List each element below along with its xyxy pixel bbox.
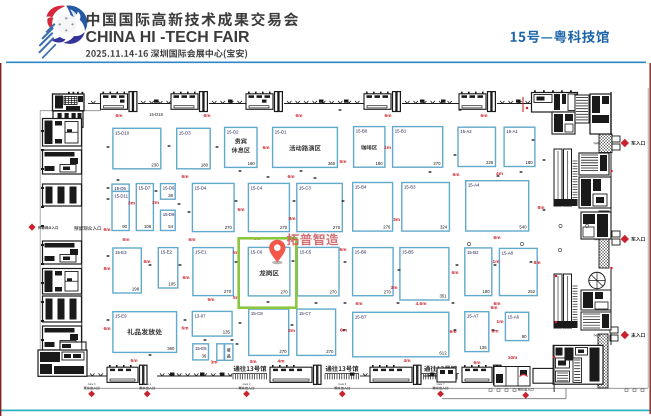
- svg-text:15-E1: 15-E1: [195, 250, 207, 255]
- svg-text:15-B7: 15-B7: [355, 314, 367, 319]
- svg-text:3m: 3m: [288, 328, 295, 334]
- svg-text:270: 270: [225, 225, 233, 230]
- svg-text:15-E9: 15-E9: [115, 314, 127, 319]
- svg-text:15-D18: 15-D18: [149, 112, 163, 117]
- svg-text:180: 180: [482, 289, 490, 294]
- svg-text:6m: 6m: [491, 305, 498, 311]
- svg-text:15-D7: 15-D7: [139, 186, 151, 191]
- svg-text:6m: 6m: [263, 145, 270, 151]
- svg-text:6m: 6m: [131, 358, 138, 364]
- svg-text:6m: 6m: [340, 159, 347, 165]
- svg-text:270: 270: [281, 290, 289, 295]
- svg-text:54: 54: [168, 224, 173, 229]
- svg-text:105: 105: [168, 282, 176, 287]
- svg-text:3m: 3m: [128, 201, 135, 207]
- svg-text:15-C7: 15-C7: [299, 311, 311, 316]
- svg-text:15-E2: 15-E2: [161, 250, 173, 255]
- svg-text:324: 324: [440, 225, 448, 230]
- svg-text:15-E5: 15-E5: [195, 346, 207, 351]
- svg-text:6m: 6m: [296, 113, 303, 119]
- svg-text:612: 612: [439, 350, 447, 355]
- svg-text:Gate 0: Gate 0: [88, 382, 96, 386]
- svg-text:15-D9: 15-D9: [163, 212, 175, 217]
- svg-text:8m: 8m: [534, 260, 541, 266]
- svg-text:15-C8: 15-C8: [251, 311, 263, 316]
- svg-text:6m: 6m: [481, 113, 488, 119]
- svg-text:15-C6: 15-C6: [251, 249, 263, 254]
- svg-text:Gate 7: Gate 7: [437, 382, 445, 386]
- svg-text:270: 270: [224, 289, 232, 294]
- svg-text:15-D11: 15-D11: [114, 193, 128, 198]
- svg-text:Gate 1: Gate 1: [143, 382, 151, 386]
- svg-text:360: 360: [167, 346, 175, 351]
- svg-text:6m: 6m: [182, 174, 189, 180]
- svg-text:15-B3: 15-B3: [404, 185, 416, 190]
- svg-text:15-B6: 15-B6: [355, 250, 367, 255]
- svg-text:36: 36: [202, 354, 207, 359]
- svg-text:15-E3: 15-E3: [115, 250, 127, 255]
- svg-text:15-B1: 15-B1: [395, 129, 407, 134]
- svg-text:160: 160: [248, 161, 256, 166]
- svg-text:6m: 6m: [104, 326, 111, 332]
- svg-text:1m: 1m: [493, 259, 500, 265]
- svg-text:8m: 8m: [289, 216, 296, 222]
- svg-text:135: 135: [479, 345, 487, 350]
- svg-text:15-A1: 15-A1: [506, 129, 518, 134]
- svg-text:6m: 6m: [385, 113, 392, 119]
- svg-text:5m: 5m: [208, 297, 215, 303]
- svg-text:1m: 1m: [497, 319, 504, 325]
- svg-text:90: 90: [122, 224, 127, 229]
- svg-text:4.5m: 4.5m: [416, 301, 427, 307]
- svg-text:3m: 3m: [211, 360, 218, 366]
- svg-text:270: 270: [326, 349, 334, 354]
- svg-text:6m: 6m: [183, 275, 190, 281]
- svg-text:6m: 6m: [453, 172, 460, 178]
- svg-text:225: 225: [486, 160, 494, 165]
- svg-text:6m: 6m: [189, 237, 196, 243]
- svg-text:8m: 8m: [104, 266, 111, 272]
- svg-text:3m: 3m: [152, 200, 159, 206]
- svg-text:6m: 6m: [452, 270, 459, 276]
- svg-text:6m: 6m: [340, 247, 347, 253]
- svg-text:15-B0: 15-B0: [356, 129, 368, 134]
- svg-text:15-D1: 15-D1: [275, 129, 287, 134]
- svg-text:6m: 6m: [123, 237, 130, 243]
- svg-text:1m: 1m: [384, 145, 391, 151]
- svg-text:Gate 3: Gate 3: [243, 382, 251, 386]
- svg-text:90: 90: [522, 334, 527, 339]
- svg-text:3m: 3m: [393, 217, 400, 223]
- svg-text:6m: 6m: [104, 227, 111, 233]
- svg-text:6m: 6m: [204, 113, 211, 119]
- svg-text:6m: 6m: [238, 207, 245, 213]
- svg-text:15-B2: 15-B2: [467, 250, 479, 255]
- svg-text:4m: 4m: [278, 359, 285, 365]
- svg-text:15-B4: 15-B4: [355, 185, 367, 190]
- svg-text:15-C3: 15-C3: [299, 185, 311, 190]
- svg-text:4m: 4m: [404, 358, 411, 364]
- svg-text:180: 180: [526, 160, 534, 165]
- svg-text:15-D10: 15-D10: [115, 130, 130, 135]
- svg-text:6m: 6m: [116, 113, 123, 119]
- svg-text:135: 135: [223, 330, 231, 335]
- svg-text:6m: 6m: [474, 360, 481, 366]
- svg-text:15-D4: 15-D4: [195, 185, 207, 190]
- svg-text:270: 270: [280, 225, 288, 230]
- svg-text:230: 230: [151, 162, 159, 167]
- svg-text:CHINA HI -TECH FAIR: CHINA HI -TECH FAIR: [86, 29, 250, 46]
- svg-text:6m: 6m: [144, 259, 151, 265]
- svg-text:180: 180: [376, 161, 384, 166]
- svg-text:6m: 6m: [356, 301, 363, 307]
- svg-text:15-C5: 15-C5: [300, 249, 312, 254]
- svg-text:3m: 3m: [250, 359, 257, 365]
- svg-text:15-B5: 15-B5: [402, 250, 414, 255]
- svg-text:15-D6: 15-D6: [163, 186, 175, 191]
- svg-text:Gate 5: Gate 5: [338, 382, 346, 386]
- svg-text:15-A4: 15-A4: [468, 183, 480, 188]
- svg-text:6m: 6m: [288, 174, 295, 180]
- svg-text:15-D3: 15-D3: [179, 130, 191, 135]
- svg-text:270: 270: [333, 225, 341, 230]
- svg-text:10m: 10m: [508, 355, 518, 361]
- svg-text:108: 108: [144, 224, 152, 229]
- svg-text:3m: 3m: [391, 285, 398, 291]
- svg-text:13-07: 13-07: [195, 313, 207, 318]
- svg-text:15-A2: 15-A2: [460, 129, 472, 134]
- svg-text:351: 351: [440, 294, 448, 299]
- svg-text:252: 252: [528, 289, 536, 294]
- svg-text:6m: 6m: [494, 235, 501, 241]
- svg-text:540: 540: [519, 225, 527, 230]
- svg-text:270: 270: [279, 349, 287, 354]
- svg-text:270: 270: [433, 161, 441, 166]
- svg-text:270: 270: [330, 290, 338, 295]
- svg-text:15-C4: 15-C4: [251, 185, 263, 190]
- svg-text:15-D2: 15-D2: [227, 129, 239, 134]
- svg-text:15-A7: 15-A7: [467, 314, 479, 319]
- svg-text:198: 198: [132, 287, 140, 292]
- svg-text:276: 276: [383, 225, 391, 230]
- svg-text:360: 360: [328, 161, 336, 166]
- svg-text:6m: 6m: [182, 326, 189, 332]
- svg-text:36: 36: [168, 193, 173, 198]
- svg-text:180: 180: [201, 162, 209, 167]
- svg-text:15-A6: 15-A6: [508, 314, 520, 319]
- svg-text:15-A8: 15-A8: [502, 250, 514, 255]
- svg-text:15-D5: 15-D5: [114, 186, 126, 191]
